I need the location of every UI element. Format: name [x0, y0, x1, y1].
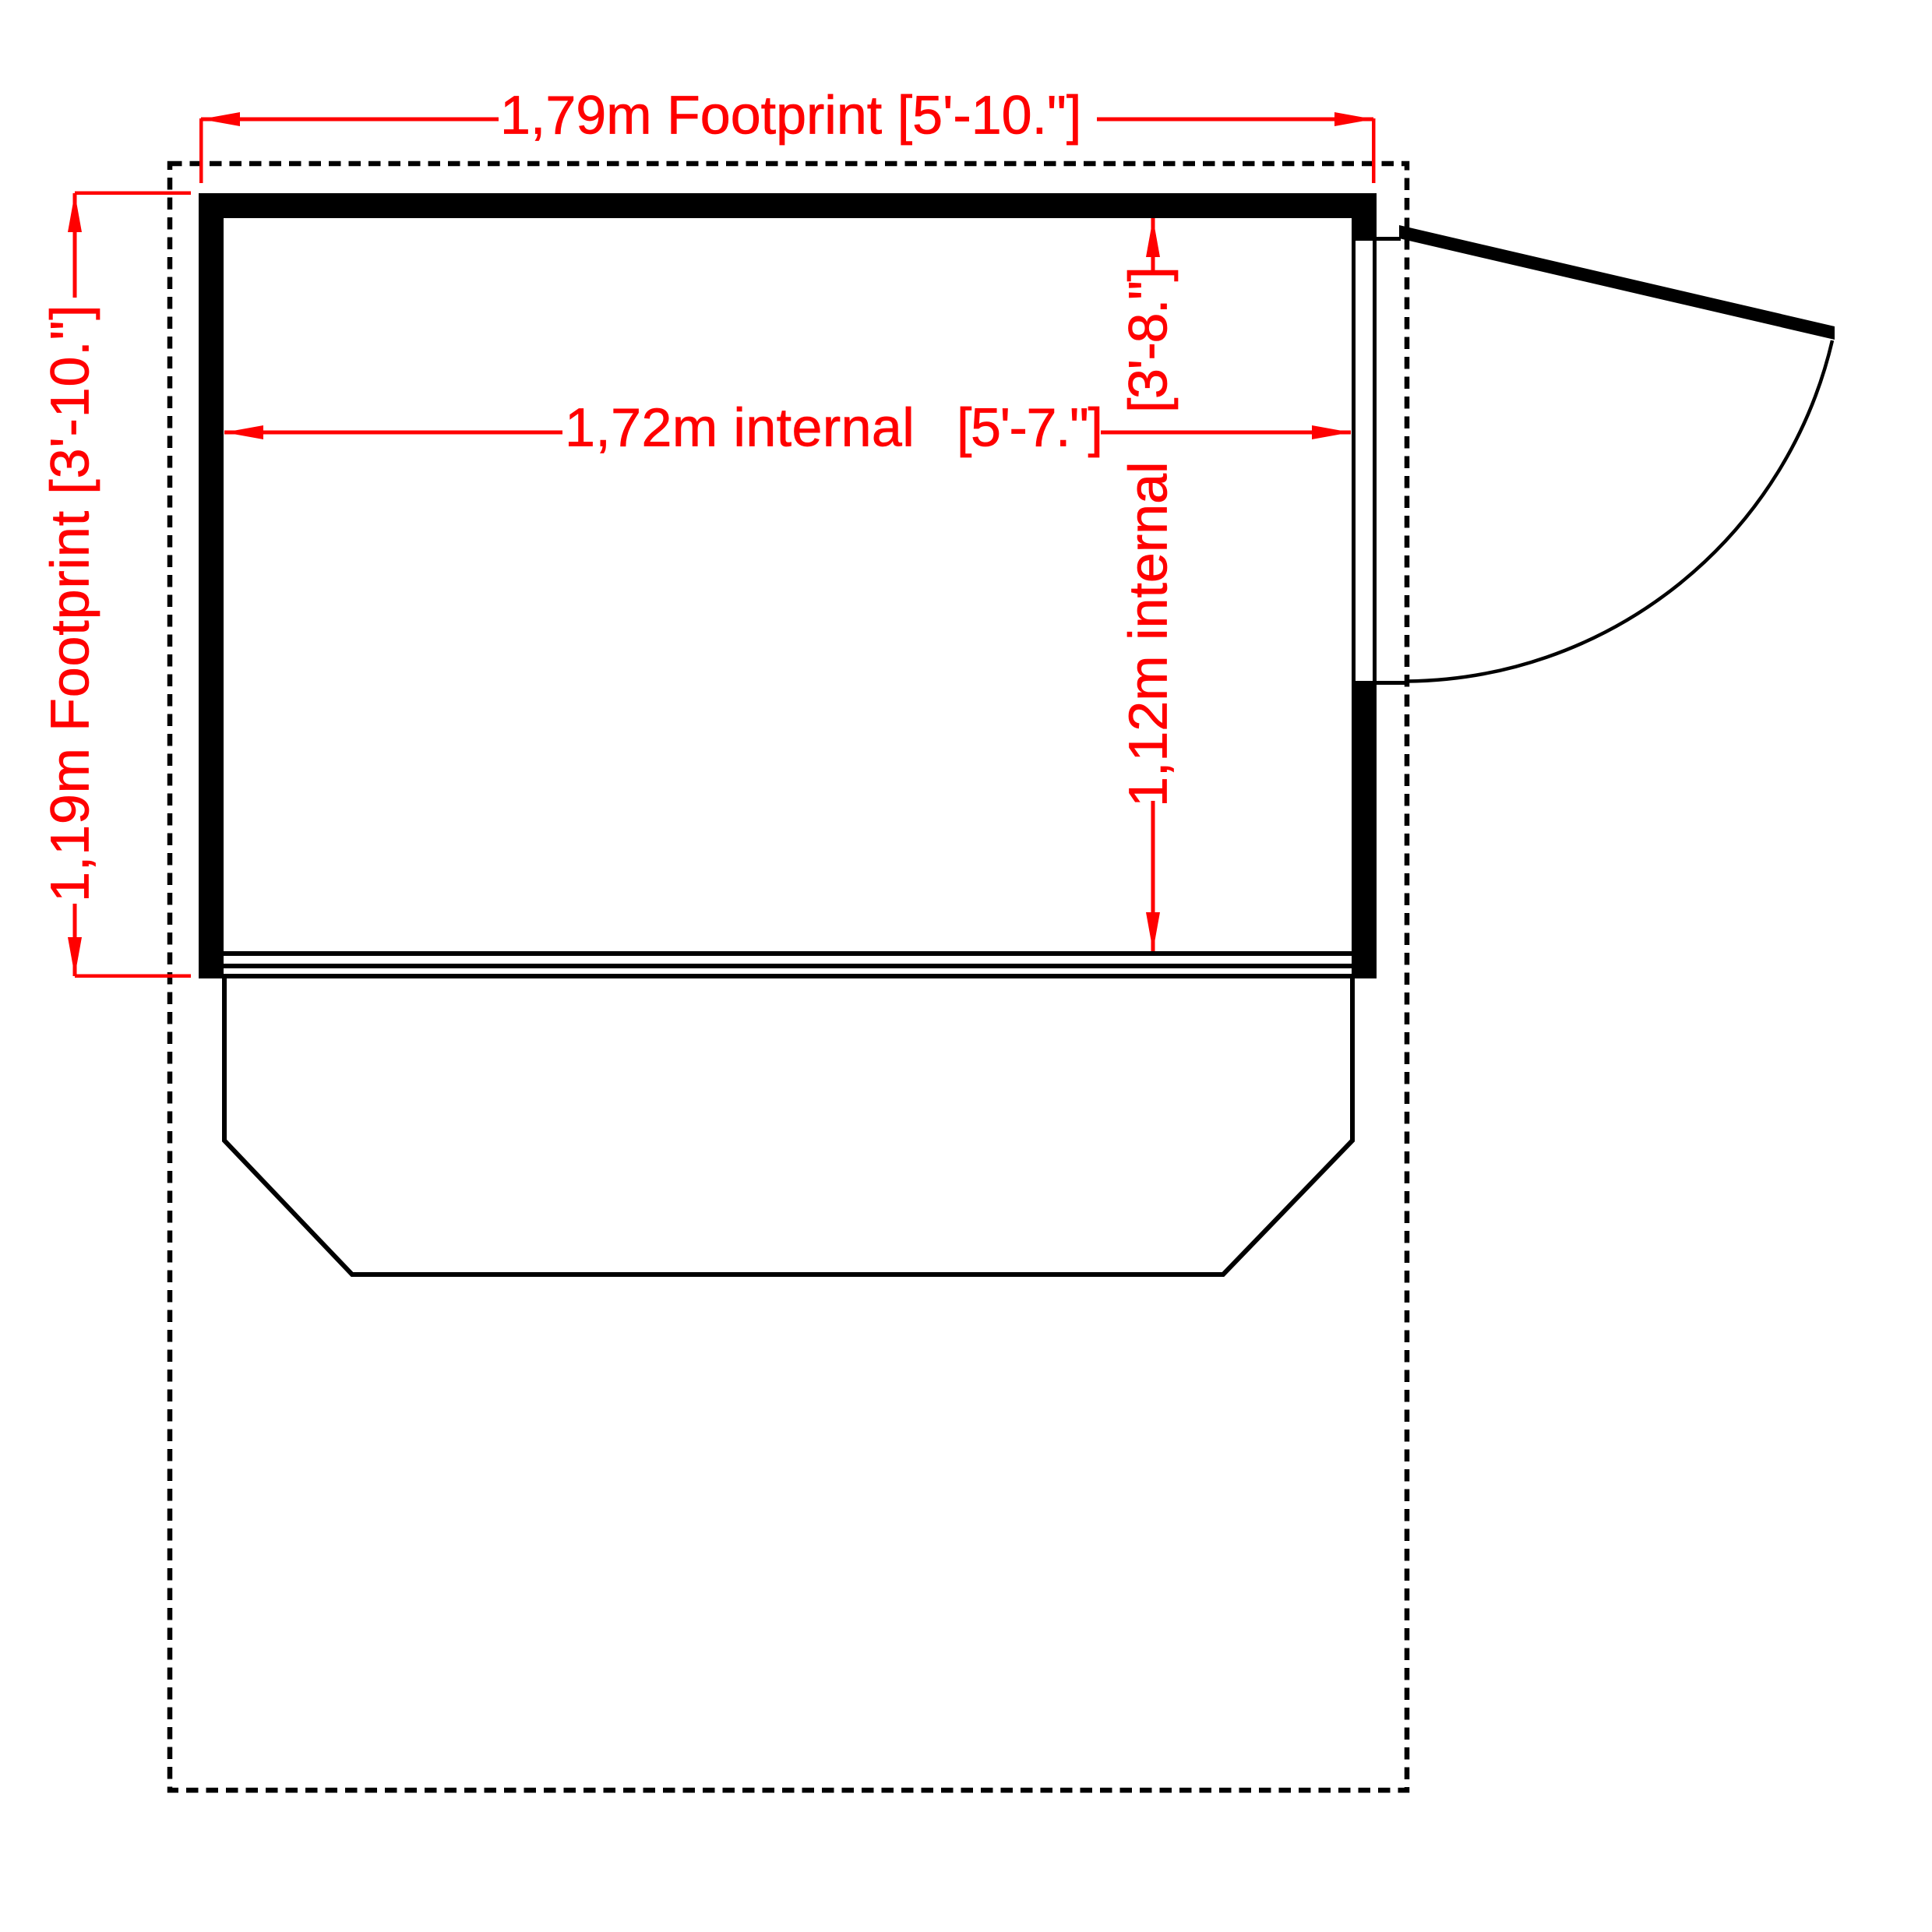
- svg-text:1,72m internal: 1,72m internal: [565, 397, 915, 458]
- svg-text:1,12m internal: 1,12m internal: [1118, 461, 1179, 807]
- svg-text:1,79m Footprint [5'-10."]: 1,79m Footprint [5'-10."]: [500, 85, 1081, 146]
- svg-text:1,19m Footprint [3'-10."]: 1,19m Footprint [3'-10."]: [40, 304, 100, 902]
- svg-text:[3'-8."]: [3'-8."]: [1118, 267, 1179, 413]
- svg-text:[5'-7."]: [5'-7."]: [957, 397, 1102, 458]
